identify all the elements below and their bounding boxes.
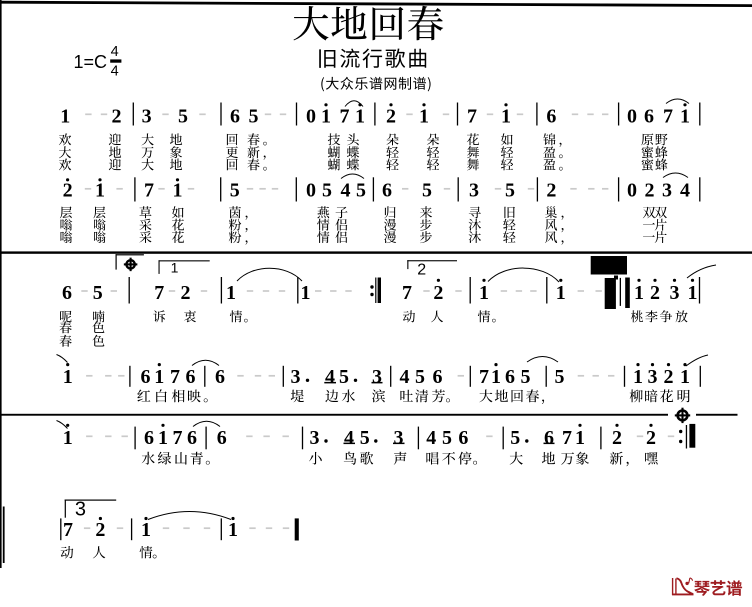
svg-text:3: 3 [662, 180, 672, 202]
svg-text:5: 5 [442, 427, 452, 449]
svg-text:7: 7 [479, 366, 489, 388]
svg-text:7: 7 [63, 519, 73, 541]
svg-text:1: 1 [680, 366, 690, 388]
svg-text:3: 3 [394, 427, 404, 449]
svg-text:7: 7 [402, 282, 412, 304]
svg-text:2: 2 [433, 282, 443, 304]
svg-text:2: 2 [417, 262, 426, 279]
svg-text:3: 3 [648, 366, 658, 388]
svg-text:1: 1 [355, 105, 365, 127]
svg-text:6: 6 [144, 427, 154, 449]
svg-text:7: 7 [467, 105, 477, 127]
svg-text:3: 3 [75, 498, 86, 520]
svg-text:4: 4 [400, 366, 410, 388]
svg-text:6: 6 [230, 105, 240, 127]
svg-text:2: 2 [386, 105, 396, 127]
svg-text:1: 1 [171, 260, 179, 276]
svg-text:1: 1 [491, 366, 501, 388]
svg-text:5: 5 [178, 105, 188, 127]
svg-text:6: 6 [644, 105, 654, 127]
svg-text:1: 1 [154, 366, 164, 388]
svg-text:4: 4 [325, 366, 335, 388]
svg-text:5: 5 [93, 282, 103, 304]
svg-text:2: 2 [63, 180, 73, 202]
svg-text:5: 5 [322, 180, 332, 202]
svg-text:5: 5 [555, 366, 565, 388]
svg-text:6: 6 [141, 366, 151, 388]
svg-text:0: 0 [627, 105, 637, 127]
svg-text:6: 6 [382, 180, 392, 202]
svg-text:2: 2 [181, 282, 191, 304]
svg-text:1: 1 [63, 366, 73, 388]
svg-text:2: 2 [95, 519, 105, 541]
svg-text:3: 3 [291, 366, 301, 388]
svg-text:2: 2 [650, 282, 660, 304]
svg-text:3: 3 [372, 366, 382, 388]
svg-text:2: 2 [646, 427, 656, 449]
svg-text:0: 0 [627, 180, 637, 202]
svg-text:1: 1 [173, 180, 183, 202]
svg-text:2: 2 [112, 105, 122, 127]
svg-text:7: 7 [170, 366, 180, 388]
svg-text:1: 1 [680, 105, 690, 127]
svg-text:2: 2 [645, 180, 655, 202]
svg-text:1: 1 [158, 427, 168, 449]
svg-text:6: 6 [187, 427, 197, 449]
svg-text:2: 2 [546, 180, 556, 202]
svg-text:7: 7 [340, 105, 350, 127]
svg-text:5: 5 [356, 180, 366, 202]
svg-text:1: 1 [95, 180, 105, 202]
svg-text:6: 6 [62, 282, 72, 304]
svg-text:6: 6 [433, 366, 443, 388]
svg-text:4: 4 [111, 44, 119, 60]
svg-text:6: 6 [546, 105, 556, 127]
svg-text:4: 4 [111, 64, 119, 80]
svg-text:1: 1 [60, 105, 70, 127]
svg-text:1: 1 [63, 427, 73, 449]
svg-text:1: 1 [575, 427, 585, 449]
svg-text:7: 7 [663, 105, 673, 127]
svg-text:6: 6 [217, 427, 227, 449]
svg-text:3: 3 [142, 105, 152, 127]
svg-text:3: 3 [310, 427, 320, 449]
svg-text:6: 6 [458, 427, 468, 449]
svg-text:7: 7 [562, 427, 572, 449]
svg-text:6: 6 [215, 366, 225, 388]
svg-text:5: 5 [505, 180, 515, 202]
svg-text:0: 0 [306, 180, 316, 202]
svg-text:3: 3 [469, 180, 479, 202]
svg-text:1: 1 [321, 105, 331, 127]
svg-text:1: 1 [301, 282, 311, 304]
svg-text:4: 4 [426, 427, 436, 449]
svg-text:1: 1 [688, 282, 698, 304]
svg-text:1: 1 [141, 519, 151, 541]
svg-text:1: 1 [228, 519, 238, 541]
svg-text:5: 5 [422, 180, 432, 202]
svg-text:1: 1 [419, 105, 429, 127]
svg-text:7: 7 [173, 427, 183, 449]
svg-text:5: 5 [415, 366, 425, 388]
svg-text:5: 5 [521, 366, 531, 388]
svg-text:4: 4 [344, 427, 354, 449]
svg-text:1: 1 [556, 282, 566, 304]
svg-text:3: 3 [670, 282, 680, 304]
svg-text:5: 5 [360, 427, 370, 449]
svg-text:7: 7 [144, 180, 154, 202]
svg-text:6: 6 [505, 366, 515, 388]
svg-text:1: 1 [501, 105, 511, 127]
svg-text:1: 1 [633, 366, 643, 388]
svg-text:5: 5 [510, 427, 520, 449]
svg-text:5: 5 [339, 366, 349, 388]
svg-text:5: 5 [230, 180, 240, 202]
svg-text:1: 1 [226, 282, 236, 304]
svg-text:5: 5 [249, 105, 259, 127]
svg-text:6: 6 [186, 366, 196, 388]
svg-text:1: 1 [479, 282, 489, 304]
svg-text:0: 0 [306, 105, 316, 127]
svg-text:4: 4 [680, 180, 690, 202]
svg-text:6: 6 [544, 427, 554, 449]
svg-text:2: 2 [612, 427, 622, 449]
svg-text:2: 2 [664, 366, 674, 388]
svg-text:1=C: 1=C [74, 52, 108, 72]
svg-text:1: 1 [634, 282, 644, 304]
svg-text:4: 4 [341, 180, 351, 202]
svg-text:7: 7 [154, 282, 164, 304]
